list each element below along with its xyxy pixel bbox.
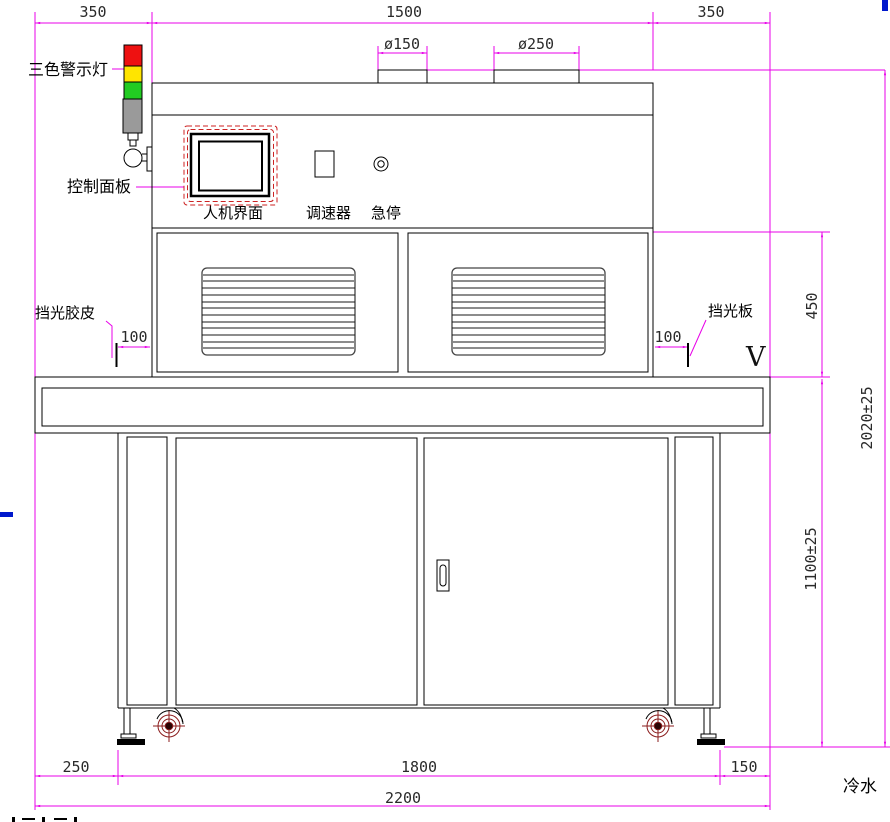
- label-hmi: 人机界面: [203, 204, 263, 222]
- dim-leg-span: 1800: [401, 758, 437, 776]
- louver-vent-left: [202, 268, 355, 355]
- cabinet-door-right: [424, 438, 668, 705]
- leveling-foot-right: [697, 708, 725, 745]
- engineering-drawing-canvas: 350 1500 350 ø150 ø250 100 100 450 1100±…: [0, 0, 890, 822]
- lamp-mount-ball: [124, 149, 142, 167]
- label-control-panel: 控制面板: [67, 177, 131, 196]
- caster-wheel-left: [153, 708, 185, 742]
- dim-bottom-left: 250: [62, 758, 89, 776]
- dim-plate-offset: 100: [654, 328, 681, 346]
- upper-enclosure: [152, 83, 653, 377]
- hmi-touchscreen: [184, 126, 277, 205]
- label-shield-plate: 挡光板: [708, 302, 753, 320]
- dim-top-left: 350: [79, 3, 106, 21]
- lamp-mount-bracket: [147, 147, 152, 171]
- lower-cabinet: [118, 433, 720, 708]
- conveyor-table: [35, 377, 770, 433]
- blue-artifact-top-right: [882, 0, 888, 11]
- dimension-extension-lines: [35, 12, 890, 810]
- exhaust-duct-large: [494, 70, 579, 83]
- dimension-texts: 350 1500 350 ø150 ø250 100 100 450 1100±…: [62, 3, 876, 807]
- door-handle: [437, 560, 449, 591]
- dim-body-width: 1500: [386, 3, 422, 21]
- caster-wheel-right: [642, 708, 674, 742]
- cabinet-leg-left: [127, 437, 167, 705]
- label-speed-controller: 调速器: [306, 204, 351, 222]
- louver-vent-right: [452, 268, 605, 355]
- label-emergency-stop: 急停: [371, 204, 401, 222]
- machine-body: [35, 70, 770, 745]
- blue-artifact-left: [0, 512, 13, 517]
- dim-hood-height: 450: [803, 292, 821, 319]
- dim-rubber-offset: 100: [120, 328, 147, 346]
- cabinet-door-left: [176, 438, 417, 705]
- dim-table-height: 1100±25: [802, 527, 820, 590]
- dimension-lines: [35, 23, 885, 806]
- lamp-neck: [128, 133, 138, 140]
- dim-duct-small: ø150: [384, 35, 420, 53]
- cabinet-leg-right: [675, 437, 713, 705]
- lamp-segment-green: [124, 82, 142, 99]
- dim-bottom-right: 150: [730, 758, 757, 776]
- emergency-stop-button: [374, 157, 388, 171]
- cutoff-text-fragment: [12, 817, 77, 822]
- speed-controller-knob: [315, 151, 334, 177]
- machine-front-view-drawing: 350 1500 350 ø150 ø250 100 100 450 1100±…: [0, 0, 890, 822]
- tri-color-warning-light: [123, 45, 152, 171]
- label-shield-rubber: 挡光胶皮: [35, 304, 95, 322]
- exhaust-duct-small: [378, 70, 427, 83]
- plate-shield-leader: [690, 320, 706, 356]
- dim-duct-large: ø250: [518, 35, 554, 53]
- dim-top-right: 350: [697, 3, 724, 21]
- dim-overall-height: 2020±25: [858, 386, 876, 449]
- view-marker-v: V: [745, 342, 766, 373]
- leveling-foot-left: [117, 708, 145, 745]
- dim-overall-length: 2200: [385, 789, 421, 807]
- label-cold-water: 冷水: [843, 777, 877, 797]
- component-labels: 三色警示灯 控制面板 人机界面 调速器 急停 挡光胶皮 挡光板 冷水 V: [28, 60, 877, 797]
- rubber-shield-leader: [106, 321, 112, 358]
- lamp-segment-yellow: [124, 66, 142, 82]
- label-warning-light: 三色警示灯: [28, 60, 108, 79]
- lamp-body: [123, 99, 142, 133]
- control-panel-face: [184, 126, 388, 205]
- leader-lines: [106, 69, 706, 358]
- lamp-segment-red: [124, 45, 142, 66]
